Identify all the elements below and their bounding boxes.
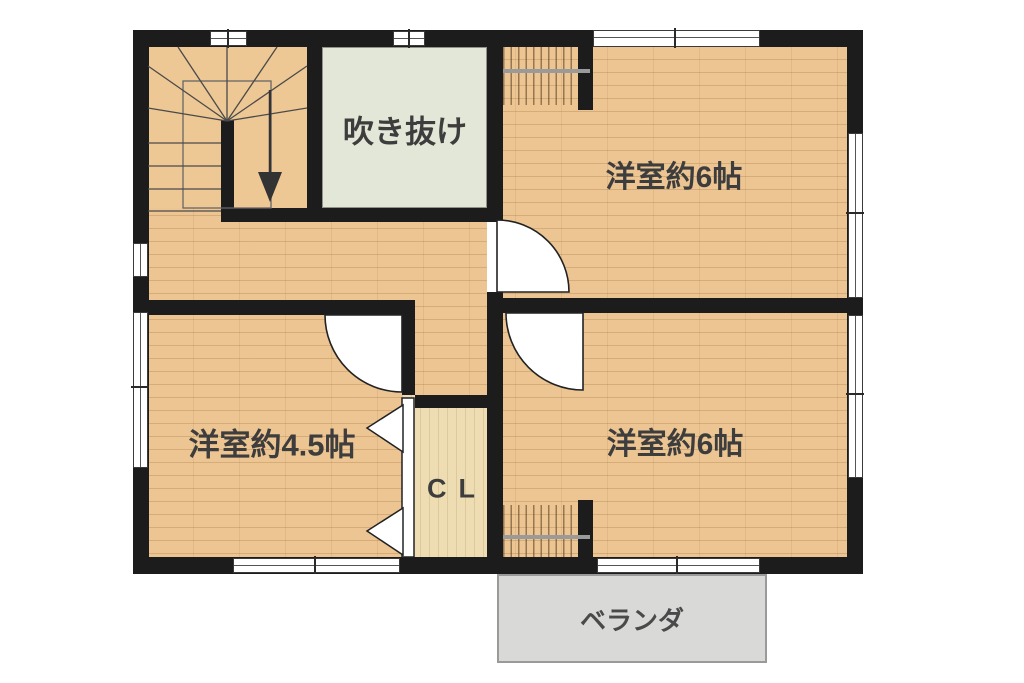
linework-overlay — [0, 0, 1024, 683]
door-swing-bedroom-w — [325, 315, 402, 392]
label-closet: CL — [427, 474, 487, 505]
bifold-door-cl — [367, 398, 414, 557]
floor-plan: 吹き抜け 洋室約6帖 洋室約4.5帖 洋室約6帖 CL ベランダ — [0, 0, 1024, 683]
label-balcony: ベランダ — [580, 601, 684, 638]
door-swing-bedroom-ne — [497, 220, 569, 292]
label-bedroom-w: 洋室約4.5帖 — [188, 420, 355, 465]
label-bedroom-se: 洋室約6帖 — [607, 419, 744, 463]
stairs-down-arrow-icon — [258, 90, 282, 202]
label-bedroom-ne: 洋室約6帖 — [606, 152, 743, 196]
door-swing-bedroom-se — [506, 313, 583, 390]
staircase-symbol — [148, 47, 307, 211]
label-void: 吹き抜け — [343, 107, 467, 152]
